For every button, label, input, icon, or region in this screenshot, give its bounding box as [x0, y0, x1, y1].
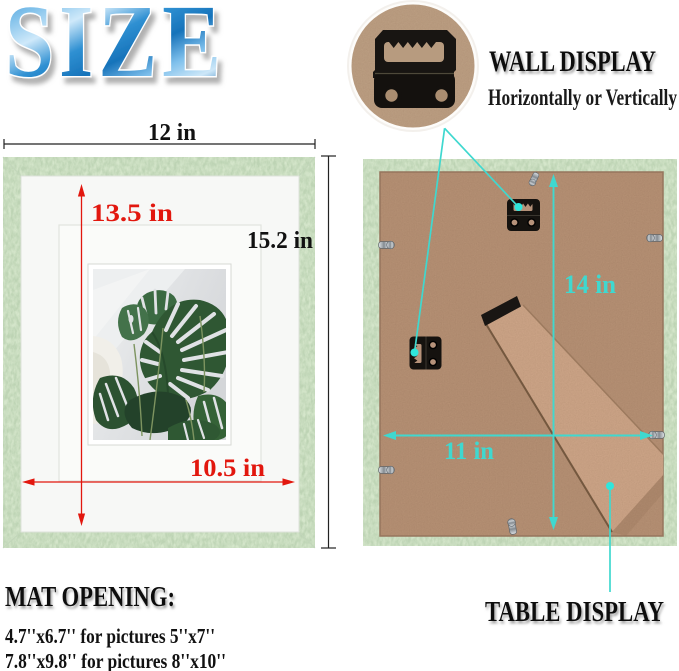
svg-text:13.5 in: 13.5 in	[91, 200, 173, 227]
svg-text:12 in: 12 in	[148, 120, 196, 146]
svg-text:10.5 in: 10.5 in	[190, 455, 265, 482]
svg-text:11 in: 11 in	[444, 438, 494, 465]
svg-text:WALL DISPLAY: WALL DISPLAY	[489, 45, 656, 78]
svg-text:15.2 in: 15.2 in	[247, 228, 313, 254]
svg-text:7.8''x9.8'' for pictures 8''x1: 7.8''x9.8'' for pictures 8''x10''	[5, 649, 226, 671]
svg-text:Horizontally or Vertically: Horizontally or Vertically	[488, 85, 677, 110]
svg-text:MAT OPENING:: MAT OPENING:	[5, 581, 175, 613]
svg-text:SIZE: SIZE	[5, 0, 226, 99]
svg-text:4.7''x6.7'' for pictures 5''x7: 4.7''x6.7'' for pictures 5''x7''	[5, 624, 215, 648]
svg-text:14 in: 14 in	[564, 270, 617, 299]
svg-text:TABLE DISPLAY: TABLE DISPLAY	[485, 596, 664, 628]
